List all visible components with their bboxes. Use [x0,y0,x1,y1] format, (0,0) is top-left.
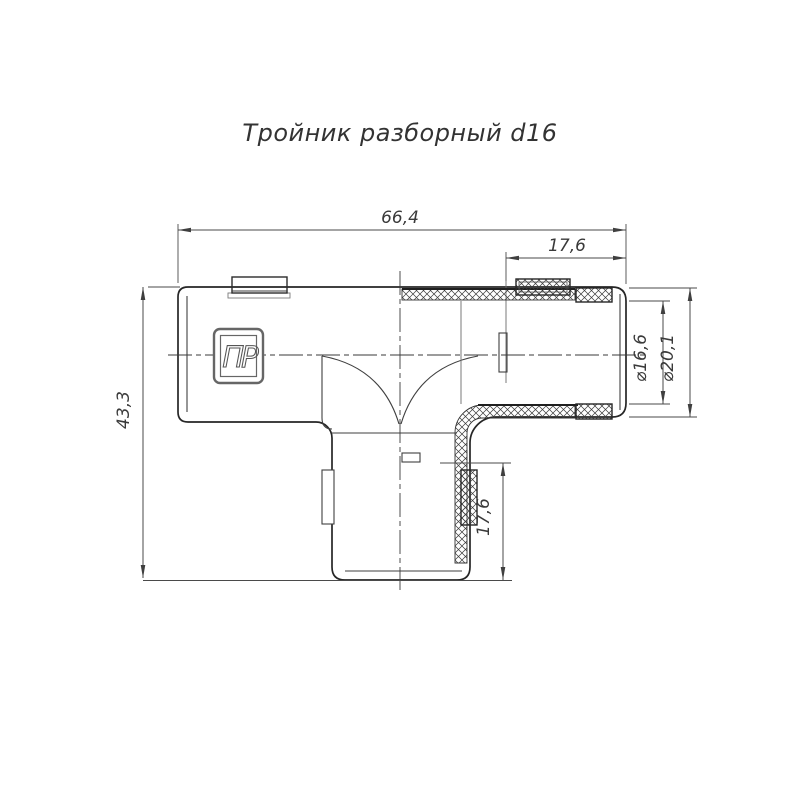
arrow-top [661,301,666,314]
drawing-title: Тройник разборный d16 [242,119,557,147]
top-grip-block [516,279,570,295]
manufacturer-logo: ПР [214,329,263,383]
technical-drawing-canvas: Тройник разборный d16 [0,0,800,800]
dimension-overall-width: 66,4 [178,208,626,232]
logo-text: ПР [222,340,259,374]
arrow-top [141,287,146,300]
top-end-grip-block [576,288,612,302]
arrow-right [613,228,626,233]
arrow-bottom [661,391,666,404]
arrow-bottom [501,567,506,580]
side-clip [322,470,334,524]
dimension-top-socket-depth: 17,6 [506,236,626,260]
arrow-left [506,256,519,261]
dimension-label-overall-height: 43,3 [114,391,134,429]
arrow-left [178,228,191,233]
arrow-bottom [688,404,693,417]
dimension-label-top-socket-depth: 17,6 [548,236,586,256]
arrow-top [688,288,693,301]
dimension-label-pipe-diameter: ⌀20,1 [658,334,678,382]
arrow-top [501,463,506,476]
dimension-overall-height: 43,3 [114,287,145,578]
arrow-bottom [141,565,146,578]
dimension-label-overall-width: 66,4 [381,208,419,228]
dimension-bottom-socket-depth: 17,6 [474,463,505,580]
drawing-sheet: Тройник разборный d16 [0,0,800,800]
bottom-end-grip-block [576,404,612,419]
dimension-label-bottom-socket-depth: 17,6 [474,498,494,536]
dimension-label-bore-diameter: ⌀16,6 [631,334,651,382]
arrow-right [613,256,626,261]
